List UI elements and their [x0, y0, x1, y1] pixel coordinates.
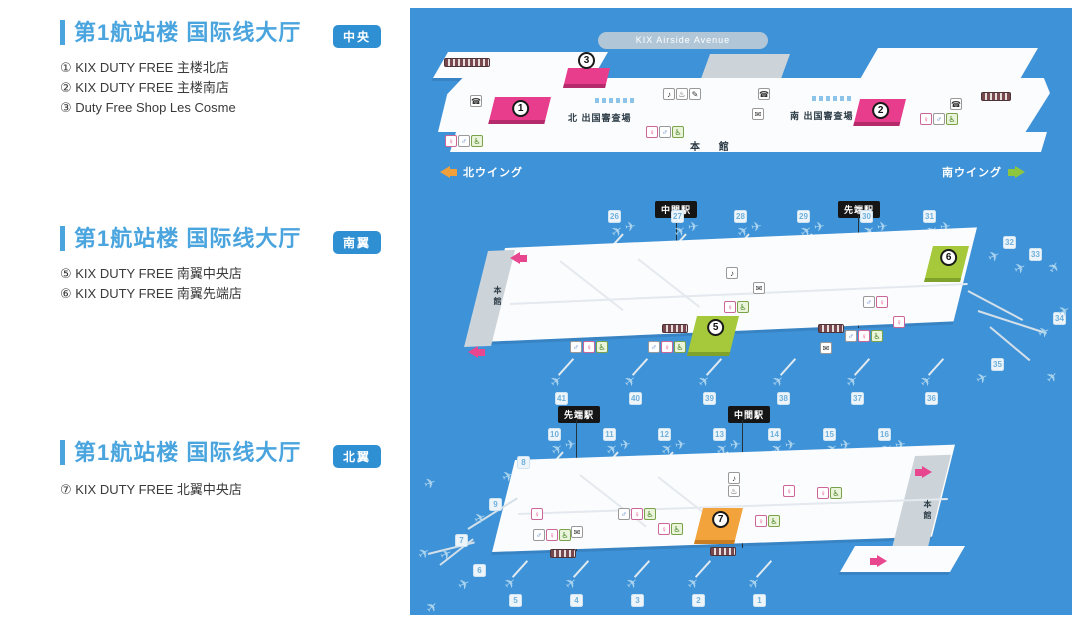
station-platform-icon	[550, 549, 576, 558]
restroom-male-icon: ♂	[570, 341, 582, 353]
airplane-icon: ✈	[456, 575, 473, 593]
list-item: ② KIX DUTY FREE 主楼南店	[60, 78, 236, 98]
restroom-female-icon: ♀	[724, 301, 736, 313]
gate-3: ✈3	[624, 560, 654, 608]
facility-icons: ♂ ♀ ♿	[845, 330, 883, 342]
facility-icons: ✉	[753, 282, 765, 294]
wheelchair-icon: ♿	[471, 135, 483, 147]
north-wing-bottom-gates: ✈5✈4✈3✈2✈1	[502, 560, 776, 608]
airplane-icon: ✈	[729, 437, 742, 451]
facility-icons: ♂ ♀ ♿	[533, 529, 571, 541]
jet-bridge	[928, 358, 944, 376]
gate-number: 27	[671, 210, 684, 223]
south-wing-honkan-label: 本館	[492, 286, 503, 308]
gate-1: ✈1	[746, 560, 776, 608]
facility-icons: ♀	[783, 485, 795, 497]
restroom-female-icon: ♀	[631, 508, 643, 520]
main-building-center-block	[701, 54, 790, 80]
phone-icon: ☎	[758, 88, 770, 100]
wheelchair-icon: ♿	[644, 508, 656, 520]
airplane-icon: ✈	[624, 219, 637, 233]
gate-37: ✈37	[844, 358, 874, 406]
music-icon: ♪	[726, 267, 738, 279]
moving-walkway-icon	[595, 98, 637, 103]
gate-5: ✈5	[502, 560, 532, 608]
wheelchair-icon: ♿	[674, 341, 686, 353]
wheelchair-icon: ♿	[830, 487, 842, 499]
airplane-icon: ✈	[500, 467, 517, 485]
airplane-icon: ✈	[695, 372, 713, 390]
gate-unit: ✈35	[976, 358, 1006, 388]
airplane-icon: ✈	[1012, 259, 1029, 277]
restroom-female-icon: ♀	[893, 316, 905, 328]
jet-bridge	[780, 358, 796, 376]
list-item: ⑥ KIX DUTY FREE 南翼先端店	[60, 284, 242, 304]
gate-39: ✈39	[696, 358, 726, 406]
gate-number: 10	[548, 428, 561, 441]
north-wing-direction: 北ウイング	[440, 164, 523, 180]
facility-icons: ✉	[571, 526, 583, 538]
facility-icons: ✉	[820, 342, 832, 354]
list-item: ③ Duty Free Shop Les Cosme	[60, 98, 236, 118]
airplane-icon: ✈	[974, 369, 991, 387]
airplane-icon: ✈	[621, 372, 639, 390]
airplane-icon: ✈	[1036, 323, 1053, 341]
airplane-icon: ✈	[562, 574, 580, 592]
restroom-male-icon: ♂	[845, 330, 857, 342]
airside-avenue-banner: KIX Airside Avenue	[598, 32, 768, 49]
facility-icons: ✉	[752, 108, 764, 120]
airplane-icon: ✈	[472, 509, 489, 527]
airplane-icon: ✈	[750, 219, 763, 233]
airplane-icon: ✈	[619, 437, 632, 451]
restroom-female-icon: ♀	[445, 135, 457, 147]
restroom-female-icon: ♀	[646, 126, 658, 138]
gate-number: 1	[753, 594, 766, 607]
airplane-icon: ✈	[843, 372, 861, 390]
airplane-icon: ✈	[684, 574, 702, 592]
section-central-title: 第1航站楼 国际线大厅	[60, 20, 301, 45]
pink-left-arrow-icon	[510, 252, 527, 264]
shop-2-duty-free-south: 2	[853, 99, 906, 126]
moving-walkway-icon	[812, 96, 854, 101]
gate-38: ✈38	[770, 358, 800, 406]
wheelchair-icon: ♿	[946, 113, 958, 125]
facility-icons: ♂ ♀ ♿	[648, 341, 686, 353]
facility-icons: ♀ ♂ ♿	[920, 113, 958, 125]
facility-icons: ☎	[758, 88, 770, 100]
facility-icons: ♀ ♿	[755, 515, 780, 527]
gate-number: 28	[734, 210, 747, 223]
section-south-badge: 南翼	[333, 231, 381, 254]
facility-icons: ♀ ♂ ♿	[646, 126, 684, 138]
airplane-icon: ✈	[986, 247, 1003, 265]
mail-icon: ✉	[752, 108, 764, 120]
gate-unit: ✈33	[1014, 248, 1044, 278]
gate-2: ✈2	[685, 560, 715, 608]
restroom-male-icon: ♂	[648, 341, 660, 353]
station-platform-icon	[662, 324, 688, 333]
facility-icons: ♀	[893, 316, 905, 328]
gate-number: 16	[878, 428, 891, 441]
tip-pier-line	[989, 326, 1030, 361]
jet-bridge	[706, 358, 722, 376]
gate-number: 4	[570, 594, 583, 607]
restroom-male-icon: ♂	[933, 113, 945, 125]
pink-right-arrow-icon	[915, 466, 932, 478]
restroom-female-icon: ♀	[783, 485, 795, 497]
pink-right-arrow-icon	[870, 555, 887, 567]
kix-terminal-map-page: 第1航站楼 国际线大厅 中央 ① KIX DUTY FREE 主楼北店 ② KI…	[0, 0, 1080, 621]
shop-1-duty-free-north: 1	[488, 97, 551, 124]
shop-2-number: 2	[872, 102, 889, 119]
jet-bridge	[695, 560, 711, 578]
facility-icons: ♪ ♨	[728, 472, 740, 497]
airplane-icon: ✈	[687, 219, 700, 233]
gate-number: 40	[629, 392, 642, 405]
facility-icons: ♂ ♀ ♿	[618, 508, 656, 520]
airplane-icon: ✈	[917, 372, 935, 390]
gate-number: 37	[851, 392, 864, 405]
airplane-icon: ✈	[1045, 258, 1063, 275]
airplane-icon: ✈	[423, 598, 441, 616]
jet-bridge	[558, 358, 574, 376]
restroom-male-icon: ♂	[618, 508, 630, 520]
facility-icons: ♀ ♿	[724, 301, 749, 313]
gate-number: 15	[823, 428, 836, 441]
gate-number: 5	[509, 594, 522, 607]
gate-number: 2	[692, 594, 705, 607]
gate-number: 14	[768, 428, 781, 441]
wheelchair-icon: ♿	[559, 529, 571, 541]
gate-36: ✈36	[918, 358, 948, 406]
section-central-badge: 中央	[333, 25, 381, 48]
airplane-icon: ✈	[769, 372, 787, 390]
facility-icons: ♪	[726, 267, 738, 279]
gate-number: 39	[703, 392, 716, 405]
gate-number: 12	[658, 428, 671, 441]
gate-unit: ✈7	[440, 534, 470, 564]
music-icon: ♪	[728, 472, 740, 484]
wheelchair-icon: ♿	[871, 330, 883, 342]
jet-bridge	[634, 560, 650, 578]
facility-icons: ♂ ♀	[863, 296, 888, 308]
section-south-title: 第1航站楼 国际线大厅	[60, 226, 301, 251]
jet-bridge	[756, 560, 772, 578]
wheelchair-icon: ♿	[671, 523, 683, 535]
restroom-female-icon: ♀	[858, 330, 870, 342]
airplane-icon: ✈	[548, 440, 566, 458]
gate-number: 7	[455, 534, 468, 547]
facility-icons: ♀ ♂ ♿	[445, 135, 483, 147]
facility-icons: ☎	[950, 98, 962, 110]
restroom-female-icon: ♀	[658, 523, 670, 535]
restroom-female-icon: ♀	[546, 529, 558, 541]
main-building-lower-band	[450, 132, 1050, 152]
shop-5-duty-free-south-central: 5	[687, 316, 739, 356]
restroom-female-icon: ♀	[583, 341, 595, 353]
gate-number: 11	[603, 428, 616, 441]
airplane-icon: ✈	[608, 222, 626, 240]
north-wing-honkan-label: 本館	[922, 500, 933, 522]
facility-icons: ☎	[470, 95, 482, 107]
section-north-title: 第1航站楼 国际线大厅	[60, 440, 301, 465]
gate-number: 3	[631, 594, 644, 607]
jet-bridge	[573, 560, 589, 578]
gate-unit: ✈8	[502, 456, 532, 486]
airplane-icon: ✈	[674, 437, 687, 451]
gate-number: 30	[860, 210, 873, 223]
shop-7-number: 7	[712, 511, 729, 528]
gate-4: ✈4	[563, 560, 593, 608]
north-wing-tip-strip	[840, 546, 965, 572]
wheelchair-icon: ♿	[596, 341, 608, 353]
restroom-male-icon: ♂	[863, 296, 875, 308]
station-middle-label: 中間駅	[728, 406, 770, 423]
music-icon: ♪	[663, 88, 675, 100]
restroom-male-icon: ♂	[458, 135, 470, 147]
airplane-icon: ✈	[671, 222, 689, 240]
airplane-icon: ✈	[813, 219, 826, 233]
shop-6-number: 6	[940, 249, 957, 266]
shuttle-platform-icon	[444, 58, 490, 67]
gate-40: ✈40	[622, 358, 652, 406]
south-wing-direction: 南ウイング	[942, 164, 1025, 180]
restroom-female-icon: ♀	[817, 487, 829, 499]
mail-icon: ✉	[820, 342, 832, 354]
wheelchair-icon: ♿	[672, 126, 684, 138]
list-item: ① KIX DUTY FREE 主楼北店	[60, 58, 236, 78]
jet-bridge	[632, 358, 648, 376]
restroom-male-icon: ♂	[659, 126, 671, 138]
north-inspection-label: 北 出国審査場	[568, 111, 632, 124]
wheelchair-icon: ♿	[768, 515, 780, 527]
section-south-shop-list: ⑤ KIX DUTY FREE 南翼中央店 ⑥ KIX DUTY FREE 南翼…	[60, 264, 242, 304]
facility-icons: ♪ ♨ ✎	[663, 88, 701, 100]
restroom-female-icon: ♀	[920, 113, 932, 125]
gate-number: 8	[517, 456, 530, 469]
station-platform-icon	[818, 324, 844, 333]
gate-number: 35	[991, 358, 1004, 371]
gate-number: 29	[797, 210, 810, 223]
mail-icon: ✉	[753, 282, 765, 294]
shop-1-number: 1	[512, 100, 529, 117]
phone-icon: ☎	[950, 98, 962, 110]
gate-number: 33	[1029, 248, 1042, 261]
facility-icons: ♀	[531, 508, 543, 520]
restroom-female-icon: ♀	[661, 341, 673, 353]
facility-icons: ♂ ♀ ♿	[570, 341, 608, 353]
station-end-label: 先端駅	[558, 406, 600, 423]
bar-icon: ♨	[676, 88, 688, 100]
south-inspection-label: 南 出国審査場	[790, 109, 854, 122]
gate-number: 13	[713, 428, 726, 441]
airplane-icon: ✈	[438, 545, 455, 563]
restroom-female-icon: ♀	[531, 508, 543, 520]
airplane-icon: ✈	[623, 574, 641, 592]
gate-number: 26	[608, 210, 621, 223]
airplane-icon: ✈	[547, 372, 565, 390]
shop-3-duty-free-les-cosme	[563, 68, 610, 88]
facility-icons: ♀ ♿	[658, 523, 683, 535]
section-north-badge: 北翼	[333, 445, 381, 468]
main-building-label: 本 館	[690, 138, 737, 153]
south-wing-bottom-gates: ✈41✈40✈39✈38✈37✈36	[548, 358, 948, 406]
shop-5-number: 5	[707, 319, 724, 336]
gate-number: 9	[489, 498, 502, 511]
airplane-icon: ✈	[415, 544, 433, 562]
restroom-male-icon: ♂	[533, 529, 545, 541]
restroom-female-icon: ♀	[876, 296, 888, 308]
gate-number: 41	[555, 392, 568, 405]
pen-icon: ✎	[689, 88, 701, 100]
airplane-icon: ✈	[1043, 368, 1061, 386]
pink-left-arrow-icon	[468, 346, 485, 358]
station-platform-icon	[710, 547, 736, 556]
airplane-icon: ✈	[564, 437, 577, 451]
section-north-shop-list: ⑦ KIX DUTY FREE 北翼中央店	[60, 480, 242, 500]
orange-left-arrow-icon	[440, 166, 457, 178]
gate-unit: ✈6	[458, 564, 488, 594]
airplane-icon: ✈	[745, 574, 763, 592]
list-item: ⑦ KIX DUTY FREE 北翼中央店	[60, 480, 242, 500]
airplane-icon: ✈	[501, 574, 519, 592]
gate-number: 6	[473, 564, 486, 577]
phone-icon: ☎	[470, 95, 482, 107]
shuttle-platform-icon	[981, 92, 1011, 101]
bar-icon: ♨	[728, 485, 740, 497]
shop-3-number: 3	[578, 52, 595, 69]
gate-number: 38	[777, 392, 790, 405]
gate-number: 36	[925, 392, 938, 405]
green-right-arrow-icon	[1008, 166, 1025, 178]
gate-number: 31	[923, 210, 936, 223]
mail-icon: ✉	[571, 526, 583, 538]
wheelchair-icon: ♿	[737, 301, 749, 313]
jet-bridge	[512, 560, 528, 578]
facility-icons: ♀ ♿	[817, 487, 842, 499]
restroom-female-icon: ♀	[755, 515, 767, 527]
section-central-shop-list: ① KIX DUTY FREE 主楼北店 ② KIX DUTY FREE 主楼南…	[60, 58, 236, 118]
airplane-icon: ✈	[422, 474, 438, 491]
jet-bridge	[854, 358, 870, 376]
gate-unit: ✈9	[474, 498, 504, 528]
airport-map-panel: KIX Airside Avenue 3 1 北 出国審査場 南 出国審査場 2…	[410, 8, 1072, 615]
gate-41: ✈41	[548, 358, 578, 406]
list-item: ⑤ KIX DUTY FREE 南翼中央店	[60, 264, 242, 284]
main-building-upper-right-wing	[861, 48, 1038, 78]
